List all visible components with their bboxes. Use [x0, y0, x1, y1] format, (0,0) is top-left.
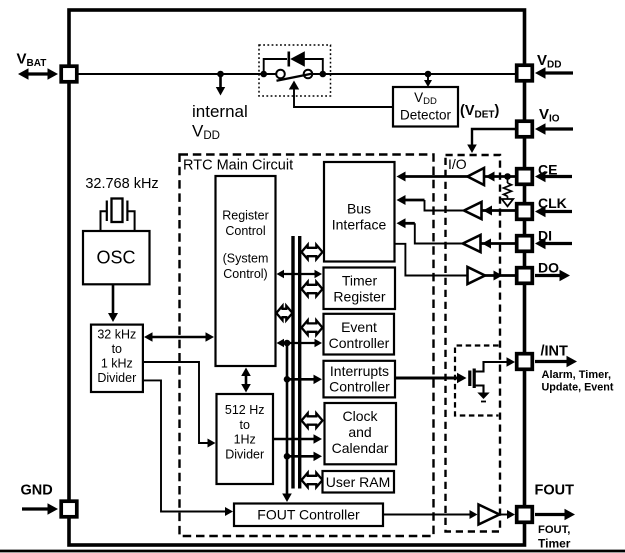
svg-text:Interface: Interface: [332, 217, 387, 233]
svg-text:VDD: VDD: [192, 122, 220, 143]
svg-text:GND: GND: [21, 483, 53, 499]
svg-text:1 kHz: 1 kHz: [101, 357, 133, 371]
svg-text:Event: Event: [341, 319, 377, 335]
svg-text:512 Hz: 512 Hz: [225, 403, 265, 417]
svg-text:FOUT,: FOUT,: [538, 524, 570, 536]
svg-text:Detector: Detector: [400, 108, 452, 123]
svg-text:User RAM: User RAM: [326, 474, 391, 490]
svg-text:(VDET): (VDET): [460, 103, 500, 121]
svg-text:FOUT: FOUT: [535, 483, 575, 499]
svg-text:OSC: OSC: [96, 248, 135, 268]
svg-text:VBAT: VBAT: [17, 51, 47, 70]
svg-text:Alarm, Timer,: Alarm, Timer,: [542, 369, 612, 381]
svg-text:Clock: Clock: [342, 408, 378, 424]
svg-text:Controller: Controller: [329, 335, 390, 351]
svg-text:Update, Event: Update, Event: [542, 382, 614, 394]
svg-text:I/O: I/O: [448, 156, 467, 172]
svg-text:Timer: Timer: [538, 537, 571, 551]
svg-text:internal: internal: [192, 102, 248, 121]
svg-text:Bus: Bus: [347, 201, 371, 217]
svg-text:DO: DO: [538, 260, 559, 276]
svg-text:to: to: [239, 418, 249, 432]
svg-text:Control): Control): [223, 267, 267, 281]
svg-text:Interrupts: Interrupts: [330, 363, 389, 379]
svg-text:1Hz: 1Hz: [234, 433, 256, 447]
svg-text:Controller: Controller: [329, 379, 390, 395]
svg-text:32.768 kHz: 32.768 kHz: [85, 176, 158, 192]
svg-text:to: to: [112, 342, 122, 356]
svg-text:/INT: /INT: [541, 344, 569, 360]
svg-text:Calendar: Calendar: [332, 440, 389, 456]
svg-text:32 kHz: 32 kHz: [97, 328, 136, 342]
svg-text:Register: Register: [222, 209, 269, 223]
svg-text:VIO: VIO: [539, 106, 560, 125]
svg-text:Timer: Timer: [342, 273, 378, 289]
svg-text:RTC Main Circuit: RTC Main Circuit: [183, 158, 293, 174]
svg-text:(System: (System: [223, 252, 269, 266]
svg-text:Divider: Divider: [225, 447, 264, 461]
svg-text:VDD: VDD: [537, 52, 561, 71]
svg-text:and: and: [348, 424, 371, 440]
svg-text:Divider: Divider: [97, 371, 136, 385]
svg-text:FOUT Controller: FOUT Controller: [257, 507, 360, 523]
svg-text:Register: Register: [333, 289, 385, 305]
svg-text:Control: Control: [225, 224, 265, 238]
